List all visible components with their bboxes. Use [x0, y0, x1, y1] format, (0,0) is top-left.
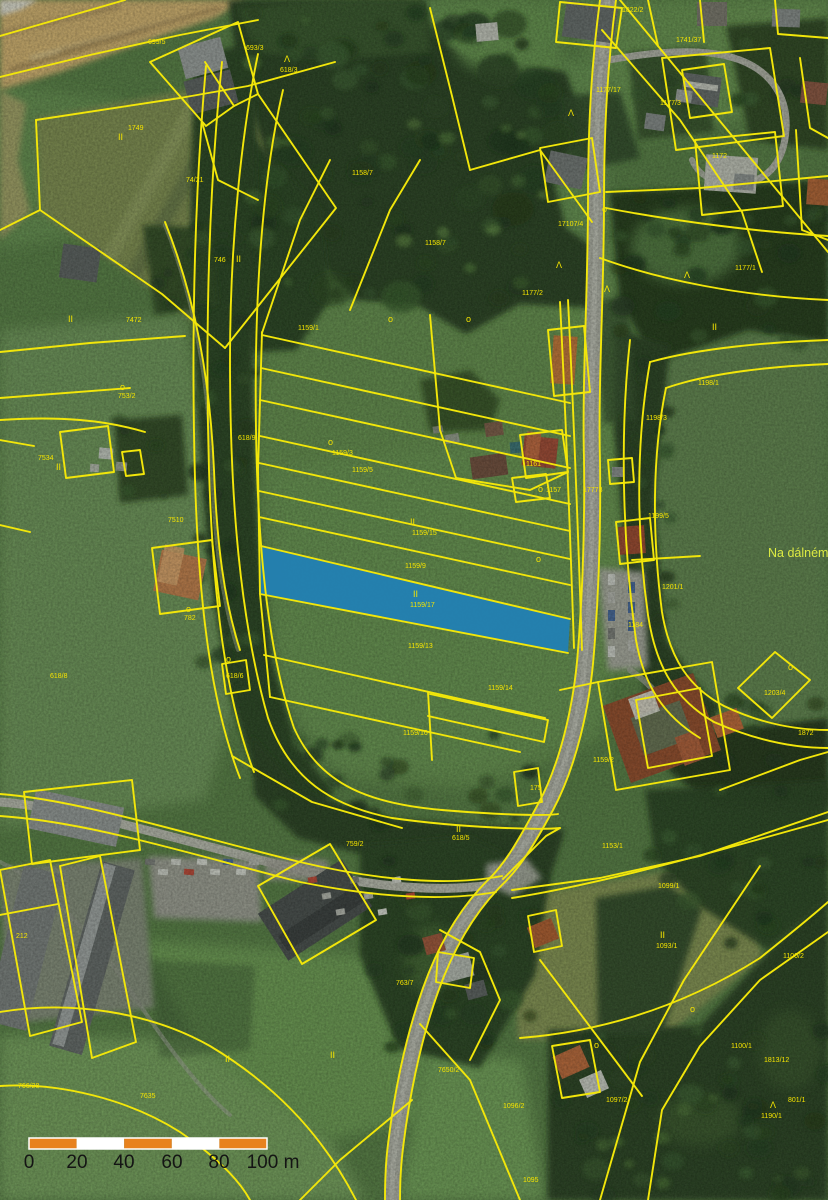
- svg-text:699/5: 699/5: [148, 39, 166, 46]
- svg-text:1161: 1161: [526, 461, 541, 468]
- svg-text:Λ: Λ: [604, 284, 610, 294]
- svg-text:o: o: [602, 204, 607, 214]
- svg-text:Λ: Λ: [284, 54, 290, 64]
- svg-text:1159/16: 1159/16: [403, 730, 428, 737]
- svg-text:0: 0: [24, 1152, 35, 1173]
- svg-text:175: 175: [530, 785, 542, 792]
- svg-text:o: o: [594, 1040, 599, 1050]
- svg-text:1153/1: 1153/1: [602, 843, 623, 850]
- svg-text:II: II: [68, 314, 73, 324]
- svg-text:1749: 1749: [128, 125, 144, 132]
- svg-text:618/8: 618/8: [50, 673, 68, 680]
- svg-text:1158/7: 1158/7: [352, 170, 373, 177]
- svg-text:1201/1: 1201/1: [662, 584, 684, 591]
- svg-text:o: o: [388, 314, 393, 324]
- svg-text:782: 782: [184, 615, 196, 622]
- svg-text:1177/1: 1177/1: [735, 265, 756, 272]
- svg-text:II: II: [236, 254, 241, 264]
- svg-text:618/5: 618/5: [452, 835, 470, 842]
- svg-text:766/28: 766/28: [18, 1083, 40, 1090]
- svg-text:7510: 7510: [168, 517, 184, 524]
- svg-text:1159/2: 1159/2: [593, 757, 614, 764]
- svg-text:212: 212: [16, 933, 28, 940]
- svg-text:1159/13: 1159/13: [408, 643, 433, 650]
- svg-text:o: o: [186, 604, 191, 614]
- svg-text:1099/1: 1099/1: [658, 883, 680, 890]
- svg-text:1872: 1872: [798, 730, 814, 737]
- svg-text:759/2: 759/2: [346, 841, 364, 848]
- svg-text:Λ: Λ: [684, 270, 690, 280]
- svg-text:17107/4: 17107/4: [558, 221, 583, 228]
- svg-text:1095: 1095: [523, 1177, 539, 1184]
- svg-text:o: o: [690, 1004, 695, 1014]
- svg-text:II: II: [660, 930, 665, 940]
- svg-text:746: 746: [214, 257, 226, 264]
- svg-text:Λ: Λ: [770, 1100, 776, 1110]
- svg-text:o: o: [538, 484, 543, 494]
- svg-text:o: o: [120, 382, 125, 392]
- svg-text:1813/12: 1813/12: [764, 1057, 789, 1064]
- svg-text:1159/5: 1159/5: [352, 467, 373, 474]
- svg-text:1184: 1184: [628, 622, 643, 629]
- svg-text:o: o: [328, 437, 333, 447]
- svg-text:763/7: 763/7: [396, 980, 414, 987]
- svg-text:II: II: [330, 1050, 335, 1060]
- svg-text:o: o: [788, 662, 793, 672]
- svg-text:20: 20: [66, 1152, 87, 1173]
- svg-text:II: II: [456, 824, 461, 834]
- svg-text:II: II: [413, 589, 418, 599]
- svg-text:1172: 1172: [712, 153, 727, 160]
- svg-text:1177/17: 1177/17: [596, 87, 621, 94]
- svg-text:1203/4: 1203/4: [764, 690, 786, 697]
- svg-text:618/3: 618/3: [280, 67, 298, 74]
- svg-text:1093/1: 1093/1: [656, 943, 678, 950]
- svg-text:60: 60: [161, 1152, 182, 1173]
- svg-text:17773: 17773: [583, 487, 603, 494]
- svg-text:40: 40: [113, 1152, 134, 1173]
- svg-text:7534: 7534: [38, 455, 54, 462]
- svg-text:7650/2: 7650/2: [438, 1067, 460, 1074]
- svg-text:1190/1: 1190/1: [761, 1113, 782, 1120]
- svg-text:1096/2: 1096/2: [503, 1103, 525, 1110]
- svg-text:1177/2: 1177/2: [522, 290, 543, 297]
- svg-text:618/9: 618/9: [238, 435, 256, 442]
- svg-text:1741/37: 1741/37: [676, 37, 701, 44]
- svg-text:1157: 1157: [546, 487, 561, 494]
- svg-text:1159/15: 1159/15: [412, 530, 437, 537]
- svg-text:7472: 7472: [126, 317, 142, 324]
- svg-text:7635: 7635: [140, 1093, 156, 1100]
- svg-text:o: o: [536, 554, 541, 564]
- svg-text:80: 80: [208, 1152, 229, 1173]
- svg-text:Na dálném: Na dálném: [768, 546, 828, 560]
- svg-text:1198/3: 1198/3: [646, 415, 667, 422]
- svg-text:Λ: Λ: [568, 108, 574, 118]
- svg-text:100 m: 100 m: [247, 1152, 300, 1173]
- svg-text:74/21: 74/21: [186, 177, 204, 184]
- svg-text:II: II: [225, 1054, 230, 1064]
- svg-text:1097/2: 1097/2: [606, 1097, 628, 1104]
- svg-text:II: II: [712, 322, 717, 332]
- svg-text:1158/7: 1158/7: [425, 240, 446, 247]
- svg-text:o: o: [466, 314, 471, 324]
- svg-text:Λ: Λ: [556, 260, 562, 270]
- svg-text:693/3: 693/3: [246, 45, 264, 52]
- svg-text:II: II: [56, 462, 61, 472]
- svg-text:1159/1: 1159/1: [298, 325, 319, 332]
- svg-text:1159/9: 1159/9: [405, 563, 426, 570]
- svg-text:1822/2: 1822/2: [622, 7, 644, 14]
- svg-text:1159/17: 1159/17: [410, 602, 435, 609]
- svg-text:1159/14: 1159/14: [488, 685, 513, 692]
- svg-text:1198/1: 1198/1: [698, 380, 719, 387]
- svg-text:1159/3: 1159/3: [332, 450, 353, 457]
- svg-text:1100/2: 1100/2: [783, 953, 804, 960]
- svg-text:753/2: 753/2: [118, 393, 136, 400]
- svg-text:1100/1: 1100/1: [731, 1043, 752, 1050]
- svg-text:1199/5: 1199/5: [648, 513, 669, 520]
- svg-text:II: II: [410, 517, 415, 527]
- svg-text:o: o: [226, 654, 231, 664]
- svg-text:II: II: [118, 132, 123, 142]
- svg-text:801/1: 801/1: [788, 1097, 806, 1104]
- svg-text:1177/3: 1177/3: [660, 100, 681, 107]
- svg-text:618/6: 618/6: [226, 673, 244, 680]
